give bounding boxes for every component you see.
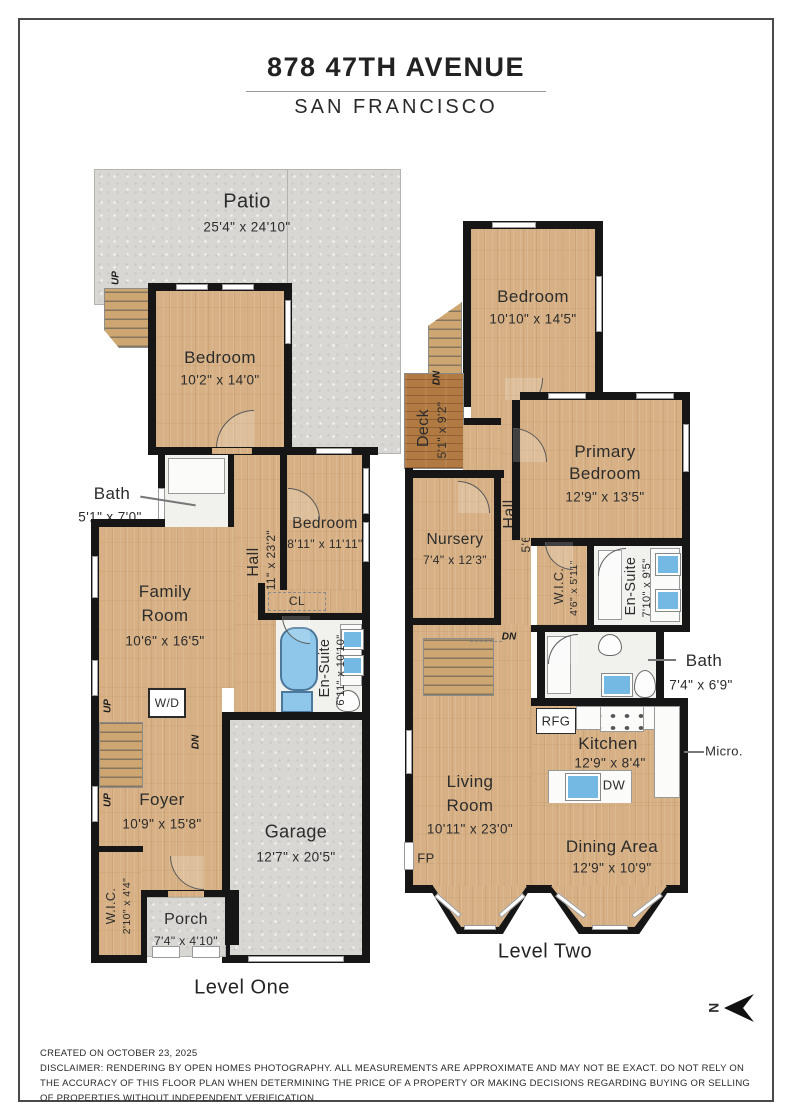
window xyxy=(92,786,98,822)
room-dims-family: 10'6" x 16'5" xyxy=(125,634,204,649)
micro-label: Micro. xyxy=(705,744,743,759)
room-label-bedroom-upper: Bedroom xyxy=(184,348,256,368)
room-label-ensuite: En-Suite xyxy=(317,639,333,698)
rfg-label: RFG xyxy=(542,714,571,729)
room-dims-wic: 2'10" x 4'4" xyxy=(121,878,133,935)
room-label-bath: Bath xyxy=(686,651,723,671)
wall-segment xyxy=(141,890,147,963)
wall-segment xyxy=(91,955,147,963)
room-label-garage: Garage xyxy=(265,822,327,843)
room-dims-bath: 7'4" x 6'9" xyxy=(669,678,732,693)
wall-segment xyxy=(587,546,594,625)
page-title: 878 47TH AVENUE xyxy=(0,52,792,83)
wall-segment xyxy=(280,447,287,590)
disclaimer-text: DISCLAIMER: RENDERING BY OPEN HOMES PHOT… xyxy=(40,1061,754,1107)
wall-segment xyxy=(405,468,413,893)
wall-segment xyxy=(463,221,471,407)
room-dims-bedroom-upper: 10'2" x 14'0" xyxy=(180,373,259,388)
floor-plan-page: 878 47TH AVENUE SAN FRANCISCO Patio 25'4… xyxy=(0,0,792,1120)
room-label-living: Living xyxy=(447,772,494,792)
room-dims-ensuite: 6'11" x 10'10" xyxy=(335,634,347,705)
window xyxy=(592,925,628,930)
room-label-living-2: Room xyxy=(447,796,494,816)
room-dims-primary: 12'9" x 13'5" xyxy=(565,490,644,505)
wall-segment xyxy=(225,890,239,945)
stair-label-up: UP xyxy=(111,271,122,285)
toilet-icon xyxy=(598,634,622,656)
wall-segment xyxy=(91,519,165,527)
room-label-family: Family xyxy=(139,582,191,602)
wall-segment xyxy=(537,632,545,700)
fireplace xyxy=(404,842,414,870)
room-dims-patio: 25'4" x 24'10" xyxy=(203,220,290,235)
room-label-primary: Primary xyxy=(574,442,635,462)
room-label-hall: Hall xyxy=(245,547,263,576)
window xyxy=(92,660,98,696)
room-dims-dining: 12'9" x 10'9" xyxy=(572,861,651,876)
wall-segment xyxy=(463,418,501,425)
sink-icon xyxy=(656,590,680,611)
page-subtitle: SAN FRANCISCO xyxy=(0,96,792,119)
room-label-primary-2: Bedroom xyxy=(569,464,641,484)
stairs-up xyxy=(104,288,154,348)
window xyxy=(596,276,602,332)
room-label-porch: Porch xyxy=(164,911,208,929)
fp-label: FP xyxy=(417,851,434,866)
window xyxy=(464,925,496,930)
room-dims-porch: 7'4" x 4'10" xyxy=(154,934,218,948)
created-date: CREATED ON OCTOBER 23, 2025 xyxy=(40,1046,197,1061)
wall-segment xyxy=(362,712,370,963)
window xyxy=(406,730,412,774)
window xyxy=(636,393,674,399)
wall-segment xyxy=(258,613,370,620)
window xyxy=(222,284,254,290)
patio-floor xyxy=(288,170,400,453)
room-label-dining: Dining Area xyxy=(566,837,658,857)
stove-icon xyxy=(600,706,644,732)
window xyxy=(492,222,536,228)
north-arrow-icon xyxy=(720,992,756,1024)
wall-segment xyxy=(512,400,520,540)
kitchen-counter xyxy=(654,706,680,798)
washer-dryer-label: W/D xyxy=(155,696,180,710)
window xyxy=(363,522,369,562)
room-dims-bedroom-mid: 8'11" x 11'11" xyxy=(287,537,362,551)
room-label-bedroom: Bedroom xyxy=(497,287,569,307)
wall-segment xyxy=(656,632,664,702)
room-label-nursery: Nursery xyxy=(426,531,483,549)
room-label-deck: Deck xyxy=(415,409,433,447)
wall-segment xyxy=(680,698,688,893)
shower-icon xyxy=(168,458,225,494)
sink-icon xyxy=(566,774,600,800)
room-label-bath: Bath xyxy=(94,484,131,504)
sink-icon xyxy=(656,554,680,575)
stairs-foyer xyxy=(99,722,143,788)
room-dims-ensuite: 7'10" x 9'5" xyxy=(641,558,653,617)
dw-label: DW xyxy=(603,778,625,793)
room-dims-nursery: 7'4" x 12'3" xyxy=(423,553,487,567)
wall-segment xyxy=(148,283,292,291)
wall-segment xyxy=(99,846,143,852)
window xyxy=(92,556,98,598)
room-label-family-2: Room xyxy=(142,606,189,626)
wall-segment xyxy=(405,470,504,478)
sink-icon xyxy=(602,674,632,696)
stair-label-up: UP xyxy=(103,793,114,807)
room-dims-deck: 5'1" x 9'2" xyxy=(435,402,449,459)
shower-icon xyxy=(281,691,313,713)
window xyxy=(363,468,369,514)
leader-line xyxy=(648,659,676,661)
doorway xyxy=(212,448,252,454)
wall-segment xyxy=(405,618,501,625)
stair-label-up: UP xyxy=(103,699,114,713)
doorway xyxy=(168,891,204,897)
room-label-patio: Patio xyxy=(223,191,271,214)
level-one-caption: Level One xyxy=(194,977,290,1000)
wall-segment xyxy=(531,698,688,706)
window xyxy=(683,424,689,472)
stair-label-dn: DN xyxy=(432,371,443,385)
stairs-dn xyxy=(423,638,494,696)
window xyxy=(285,300,291,344)
deck-floor xyxy=(405,374,463,468)
room-dims-foyer: 10'9" x 15'8" xyxy=(122,817,201,832)
room-dims-living: 10'11" x 23'0" xyxy=(427,822,513,837)
room-dims-garage: 12'7" x 20'5" xyxy=(256,850,335,865)
room-label-wic: W.I.C. xyxy=(552,568,566,604)
room-dims-kitchen: 12'9" x 8'4" xyxy=(574,756,645,771)
leader-line xyxy=(684,751,704,753)
room-label-kitchen: Kitchen xyxy=(578,734,638,754)
garage-door xyxy=(248,956,344,962)
wall-segment xyxy=(148,283,156,455)
leader-dash xyxy=(470,641,502,642)
wall-segment xyxy=(362,613,370,712)
window xyxy=(176,284,208,290)
stair-label-dn: DN xyxy=(502,632,516,643)
title-divider xyxy=(246,91,546,92)
wall-segment xyxy=(531,625,690,632)
toilet-icon xyxy=(634,670,656,698)
wall-segment xyxy=(222,712,370,720)
wall-segment xyxy=(494,478,501,618)
window xyxy=(548,393,586,399)
window xyxy=(316,448,352,454)
stair-label-dn: DN xyxy=(191,735,202,749)
room-label-closet: CL xyxy=(289,594,305,608)
room-label-wic: W.I.C. xyxy=(104,888,118,924)
level-two-caption: Level Two xyxy=(498,941,592,964)
room-dims-bedroom: 10'10" x 14'5" xyxy=(489,312,576,327)
room-label-foyer: Foyer xyxy=(139,790,184,810)
